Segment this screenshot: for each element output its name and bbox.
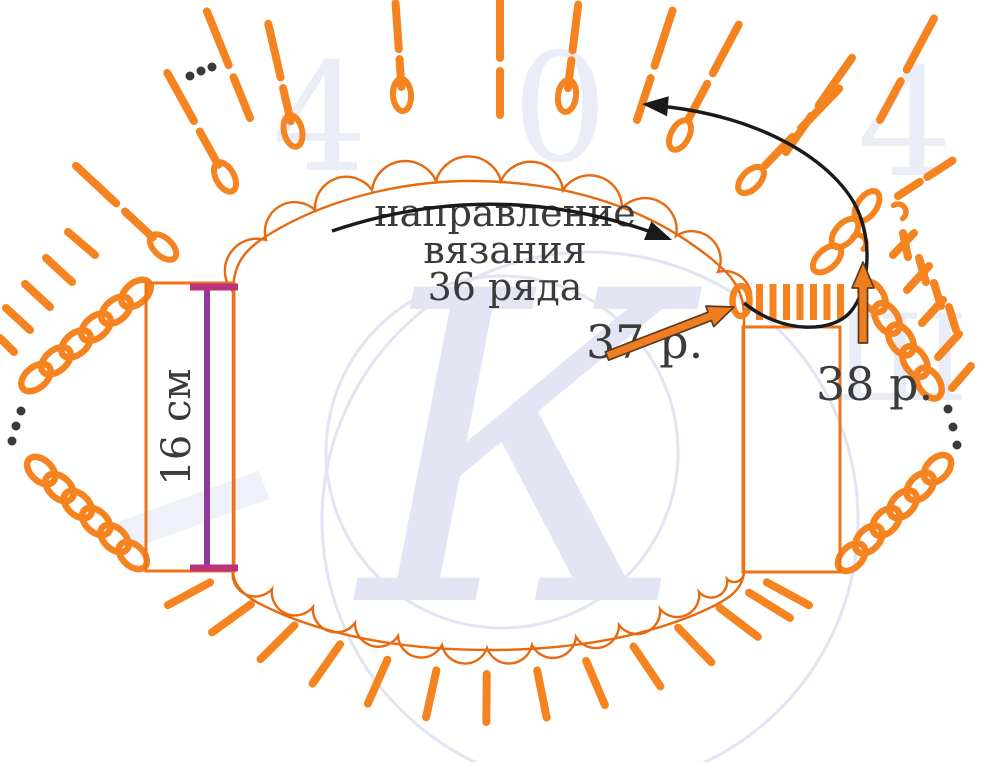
chain-oval: [850, 520, 888, 558]
chain-oval: [833, 538, 871, 576]
ellipsis-dot: [186, 72, 195, 81]
row37-stitch-bar: [824, 284, 831, 320]
ellipsis-dot: [949, 423, 958, 432]
bottom-stitch-dash: [212, 604, 251, 632]
stitch-dash-inner: [399, 59, 401, 87]
row37-stitch-bar: [783, 284, 790, 320]
ellipsis-dot: [208, 63, 217, 72]
row37-stitch-bar: [810, 284, 817, 320]
stitch-dash: [0, 338, 14, 352]
stitch-dash: [46, 258, 72, 282]
chain-oval: [77, 503, 115, 541]
row37-stitch-bar: [797, 284, 804, 320]
row38-label: 38 р.: [816, 357, 933, 411]
row37-start-chain-oval: [733, 286, 750, 316]
ellipsis-dot: [953, 441, 962, 450]
ellipsis-dot: [17, 407, 26, 416]
stitch-dash-outer: [713, 25, 739, 74]
chain-oval: [22, 452, 60, 490]
ellipsis-dot: [12, 422, 21, 431]
bottom-stitch-dash: [312, 644, 340, 683]
ellipsis-dot: [944, 405, 953, 414]
crochet-chart: 404ШК направление вязания 36 ряда 37 р. …: [0, 0, 990, 762]
stitch-dash-outer: [655, 11, 673, 66]
stitch-dash: [25, 284, 50, 307]
bottom-stitch-dash: [767, 582, 809, 605]
bottom-stitch-dash: [261, 625, 295, 659]
bottom-stitch-dash: [720, 608, 758, 637]
stitch-dash-inner: [786, 116, 811, 152]
bottom-stitch-dash: [749, 593, 790, 618]
stitch-dash-inner: [637, 78, 651, 120]
chain-oval: [40, 469, 78, 507]
stitch-dash: [6, 308, 30, 330]
stitch-dash-outer: [76, 166, 116, 204]
chain-oval: [867, 503, 905, 541]
stitch-dash-outer: [396, 3, 399, 49]
stitch-dash-inner: [568, 60, 571, 88]
chain-oval: [919, 450, 957, 488]
bottom-stitch-dash: [168, 582, 210, 605]
stitch-dash-inner: [234, 77, 250, 118]
ellipsis-dot: [197, 67, 206, 76]
stitch-dash-outer: [207, 11, 229, 65]
direction-label-line3: 36 ряда: [428, 265, 583, 309]
chain-oval: [59, 486, 97, 524]
row37-stitch-bar: [837, 284, 844, 320]
watermark-letter: 4: [857, 37, 952, 211]
size-label: 16 см: [154, 368, 200, 485]
stitch-dash-outer: [573, 5, 579, 51]
stitch-dash: [68, 232, 95, 255]
stitch-dash-inner: [200, 132, 218, 165]
crochet-diagram-page: 404ШК направление вязания 36 ряда 37 р. …: [0, 0, 990, 762]
chain-oval: [16, 359, 56, 397]
stitch-dash-inner: [125, 212, 153, 238]
row37-stitch-bar: [770, 284, 777, 320]
chain-oval: [901, 467, 939, 505]
chain-oval: [884, 485, 922, 523]
ellipsis-dot: [8, 437, 17, 446]
